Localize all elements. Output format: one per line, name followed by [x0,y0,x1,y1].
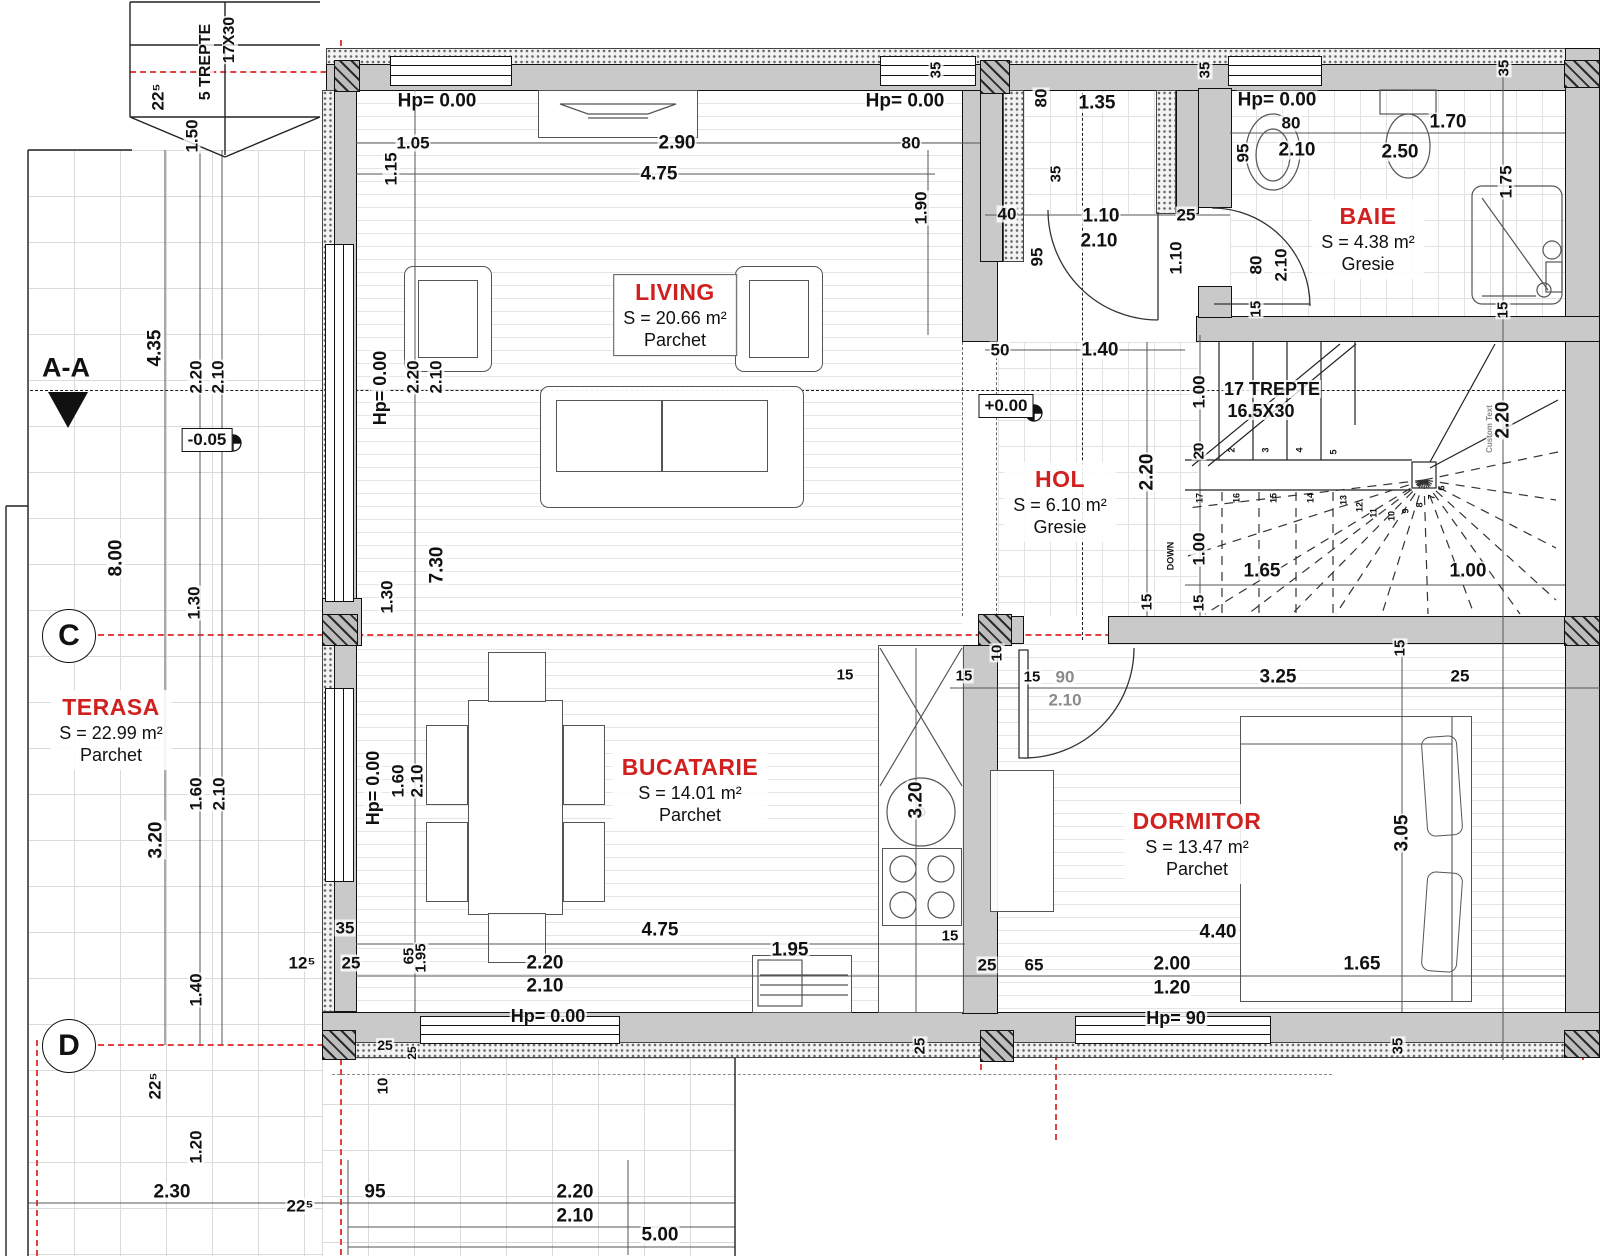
dim-label: Hp= 0.00 [364,750,382,827]
dim-label: 1.75 [1498,164,1515,199]
dim-label: 35 [1049,165,1064,184]
section-label: A-A [42,353,90,384]
dim-label: 1.10 [1082,207,1121,226]
dim-label: 3.25 [1259,668,1298,687]
dim-label: 2.20 [405,359,422,394]
dim-label: 2.10 [428,359,445,394]
stair-number: 13 [1340,494,1349,506]
axis-c-letter: C [58,619,80,653]
room-label-terasa: TERASAS = 22.99 m²Parchet [50,690,172,770]
dim-label: 15 [955,669,974,684]
axis-bubble-c: C [42,609,96,663]
room-text: Gresie [1013,516,1107,539]
dim-label: 1.20 [1153,979,1192,998]
dim-label: 1.05 [395,135,430,152]
dim-label: 80 [1033,88,1050,109]
room-text: S = 6.10 m² [1013,494,1107,517]
dim-label: 1.65 [1343,955,1382,974]
room-text: TERASA [59,693,163,722]
dim-label: 1.00 [1449,562,1488,581]
dim-label: 16.5X30 [1226,402,1295,420]
dim-label: 35 [335,920,356,937]
dim-label: 1.00 [1191,374,1208,409]
dim-label: 1.30 [186,585,203,620]
dim-label: 2.10 [1273,247,1290,282]
dim-label: 5 TREPTE [198,23,214,101]
dim-label: 2.10 [1047,692,1082,709]
dim-label: 2.20 [1138,453,1157,492]
stair-number: 2 [1228,446,1237,453]
living-tv [560,104,676,118]
axis-bubble-d: D [42,1019,96,1073]
stair-number: 17 [1196,492,1205,504]
dim-label: 3.20 [147,821,166,860]
dim-label: 4.75 [640,165,679,184]
dim-label: 1.60 [188,776,205,811]
stair-number: 3 [1262,446,1271,453]
dim-label: 15 [1023,670,1042,685]
dim-label: 95 [1029,247,1046,268]
dim-label: 1.90 [913,190,930,225]
dim-label: 15 [1140,593,1155,612]
dim-label: 8.00 [107,539,126,578]
room-text: DORMITOR [1133,807,1262,836]
entry-door [1048,210,1158,320]
level-terrace: -0.05 [182,428,233,452]
room-text: S = 22.99 m² [59,722,163,745]
dim-label: 1.40 [188,972,205,1007]
dim-label: 2.50 [1381,143,1420,162]
dim-label: 25 [913,1037,928,1056]
dim-label: 1.30 [379,579,396,614]
dim-label: 25 [977,957,998,974]
dim-label: 25 [376,1038,394,1052]
level-main: +0.00 [978,394,1033,418]
dim-label: 1.35 [1078,94,1117,113]
level-markers [225,405,1042,451]
dim-label: DOWN [1167,541,1176,572]
dim-label: 22⁵ [286,1198,315,1215]
stair-number: 9 [1402,507,1411,514]
dim-label: 2.10 [210,359,227,394]
room-label-bucatarie: BUCATARIES = 14.01 m²Parchet [613,750,768,830]
room-text: Parchet [59,744,163,767]
dim-label: 15 [836,668,855,683]
dim-label: 2.90 [658,134,697,153]
dim-label: 90 [1055,669,1076,686]
dim-label: 1.95 [771,941,810,960]
dim-label: 80 [1281,115,1302,132]
stair-number: 1 [1194,446,1203,453]
dim-label: 25 [341,955,362,972]
dim-label: 2.10 [1278,141,1317,160]
dim-label: 7.30 [428,546,447,585]
dim-label: 1.40 [1081,341,1120,360]
stair-number: 16 [1233,492,1242,504]
room-text: S = 20.66 m² [623,307,727,330]
dim-label: 1.20 [188,1129,205,1164]
toilet-tank [1380,90,1436,114]
dim-label: 95 [1235,143,1252,164]
dim-label: 5.00 [641,1226,680,1245]
dim-label: 65 [1024,957,1045,974]
room-text: Gresie [1321,253,1415,276]
dim-label: 2.10 [556,1207,595,1226]
dim-label: 15 [1393,639,1408,658]
linework-overlay [0,0,1600,1257]
dim-label: 2.30 [153,1183,192,1202]
dim-label: 1.95 [414,942,429,973]
room-label-baie: BAIES = 4.38 m²Gresie [1312,199,1424,279]
dim-label: 2.10 [1080,232,1119,251]
floor-plan: 5 TREPTE17X3022⁵1.50Hp= 0.001.151.052.90… [0,0,1600,1257]
dim-label: 2.00 [1153,955,1192,974]
dim-label: Hp= 0.00 [510,1007,587,1025]
dim-label: 25 [406,1045,418,1060]
dim-label: 80 [1248,255,1265,276]
dim-label: 35 [929,61,944,80]
dim-label: 10 [376,1077,391,1096]
dim-label: 17X30 [222,16,238,64]
dim-label: 1.15 [383,151,400,186]
room-text: S = 4.38 m² [1321,231,1415,254]
stair-number: 6 [1438,484,1447,491]
room-text: BAIE [1321,202,1415,231]
dim-label: 95 [363,1183,386,1202]
dim-label: 40 [997,206,1018,223]
dim-label: 35 [1391,1037,1406,1056]
dim-label: 1.65 [1243,562,1282,581]
dim-label: 15 [1496,301,1511,320]
dim-label: 1.00 [1191,531,1208,566]
dim-label: 4.35 [146,329,165,368]
stair-number: 7 [1428,493,1437,500]
room-text: HOL [1013,465,1107,494]
dim-label: Hp= 0.00 [1237,91,1318,110]
cabinet-x [880,648,962,786]
room-text: S = 13.47 m² [1133,836,1262,859]
dim-label: 2.20 [1494,401,1513,440]
dim-label: 4.40 [1199,923,1238,942]
dim-label: 4.75 [641,921,680,940]
stair-number: 15 [1270,492,1279,504]
dim-label: 10 [990,644,1005,663]
dim-label: 2.20 [526,954,565,973]
dim-label: 50 [990,342,1011,359]
dim-label: 1.10 [1168,240,1185,275]
stair-number: 8 [1416,501,1425,508]
room-text: Parchet [1133,858,1262,881]
dim-label: 3.05 [1393,814,1412,853]
dim-label: 15 [1192,594,1207,613]
stair-number: 4 [1296,446,1305,453]
room-label-hol: HOLS = 6.10 m²Gresie [1004,462,1116,542]
dim-label: 2.10 [211,776,228,811]
axis-d-letter: D [58,1029,80,1063]
dim-label: Custom Text [1486,404,1494,454]
dim-label: Hp= 90 [1145,1009,1207,1027]
dormitor-door-leaf [1019,650,1028,758]
room-text: LIVING [623,278,727,307]
dim-label: 25 [1450,668,1471,685]
room-text: Parchet [623,329,727,352]
room-text: Parchet [622,804,759,827]
dim-label: 15 [1249,300,1264,319]
shower-head [1543,241,1561,259]
dim-label: 25 [1176,207,1197,224]
dim-label: 22⁵ [147,1072,164,1101]
dim-label: 1.70 [1429,113,1468,132]
dim-label: 1.60 [390,763,407,798]
dim-label: Hp= 0.00 [865,92,946,111]
section-arrow [48,392,88,428]
stair-number: 11 [1370,507,1379,519]
dim-label: 15 [941,929,960,944]
dim-label: 35 [1497,59,1512,78]
stair-number: 12 [1356,501,1365,513]
dim-label: 2.20 [556,1183,595,1202]
dim-label: 22⁵ [150,83,167,112]
dim-label: 1.50 [184,118,201,153]
stair-number: 14 [1307,492,1316,504]
stair-number: 10 [1388,510,1397,522]
dim-label: 80 [901,135,922,152]
dim-label: 2.10 [409,763,426,798]
room-text: S = 14.01 m² [622,782,759,805]
dim-label: 12⁵ [288,955,317,972]
dim-label: 35 [1198,61,1213,80]
dim-label: Hp= 0.00 [371,350,389,427]
dim-label: 2.10 [526,977,565,996]
dim-label: 17 TREPTE [1223,380,1321,398]
room-label-dormitor: DORMITORS = 13.47 m²Parchet [1124,804,1271,884]
dim-label: Hp= 0.00 [397,92,478,111]
room-label-living: LIVINGS = 20.66 m²Parchet [613,274,737,356]
dim-label: 3.20 [907,781,926,820]
stair-number: 5 [1330,448,1339,455]
room-text: BUCATARIE [622,753,759,782]
dim-label: 2.20 [188,359,205,394]
